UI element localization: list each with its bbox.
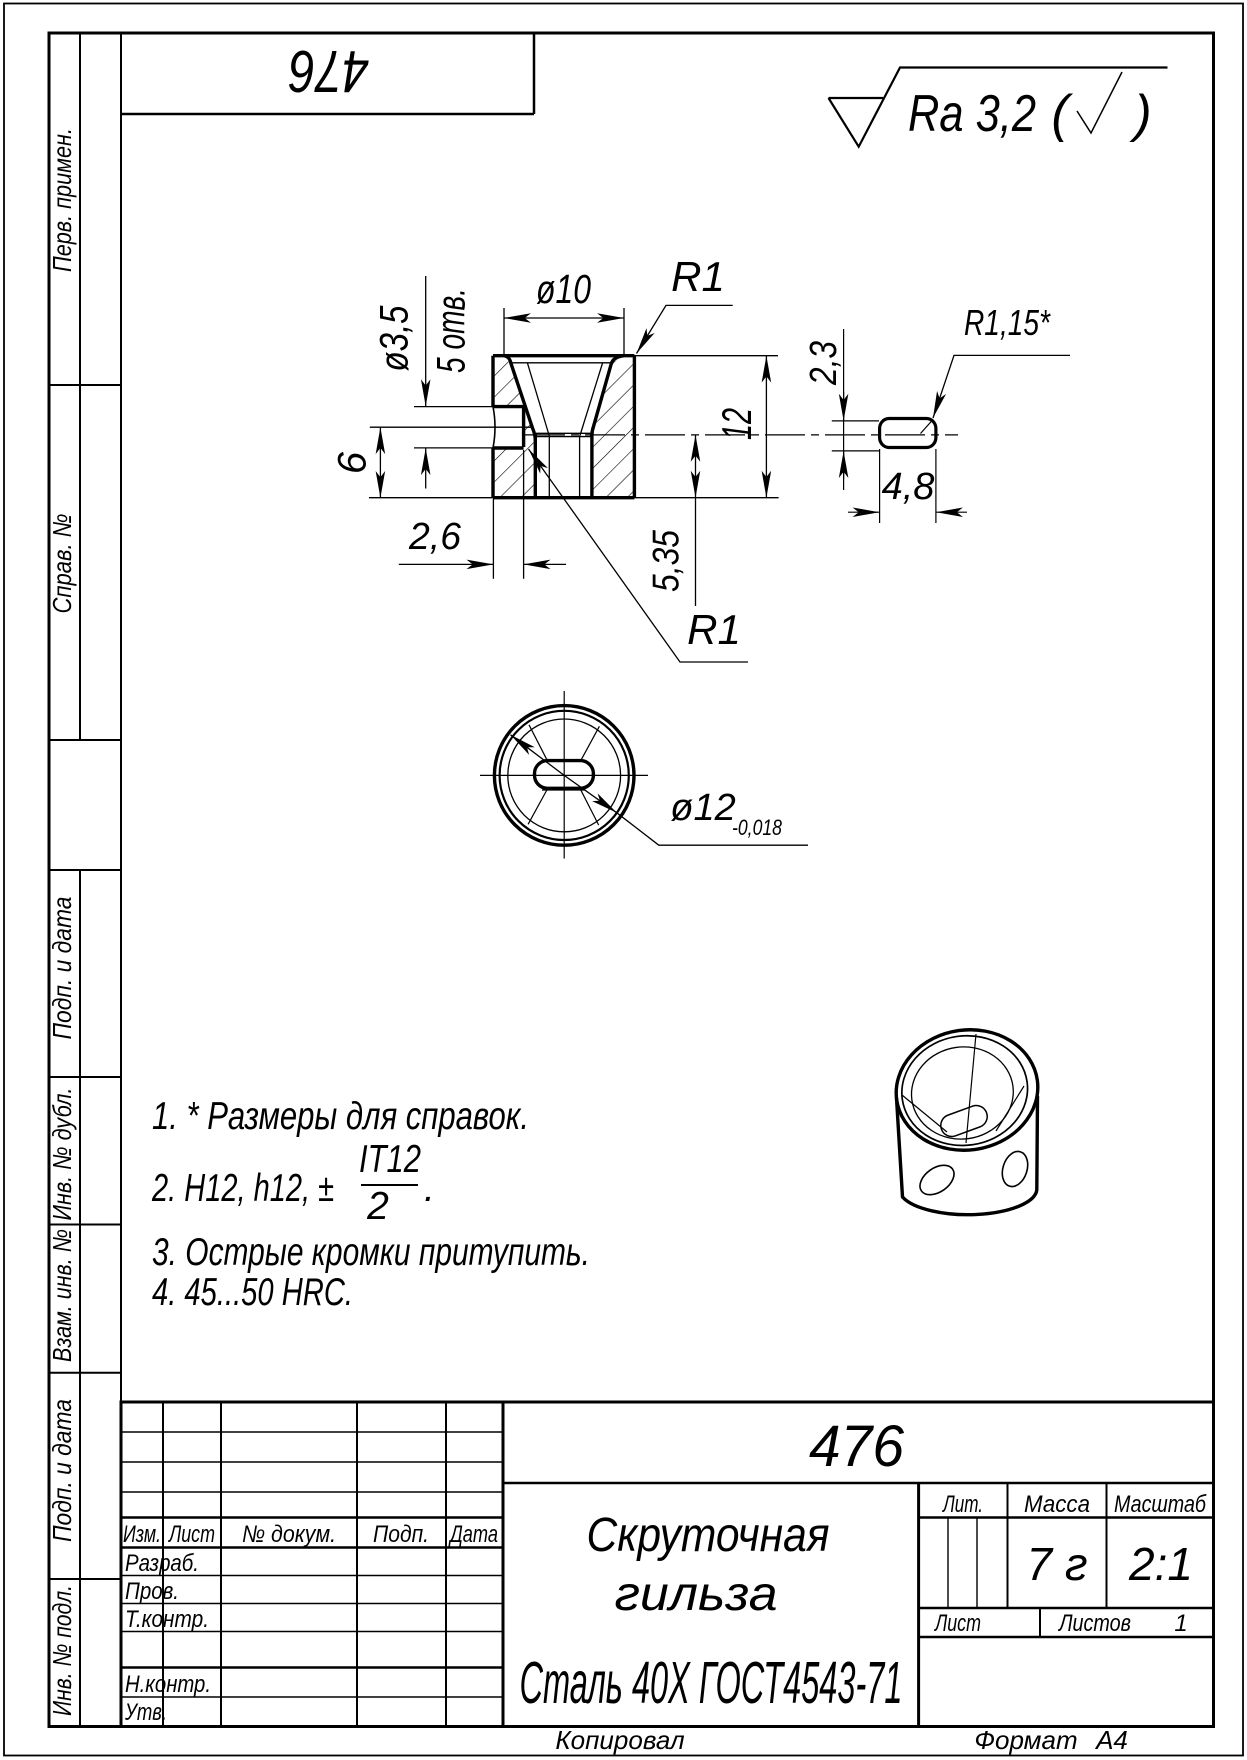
svg-text:Перв. примен.: Перв. примен. — [47, 128, 77, 272]
svg-text:5 отв.: 5 отв. — [430, 288, 474, 373]
svg-text:Лист: Лист — [168, 1521, 215, 1548]
svg-text:R1: R1 — [687, 606, 741, 653]
svg-text:476: 476 — [289, 38, 369, 104]
svg-text:12: 12 — [713, 408, 760, 440]
svg-text:1: 1 — [1174, 1610, 1187, 1637]
svg-text:Подп. и дата: Подп. и дата — [47, 897, 77, 1040]
svg-text:Взам. инв. №: Взам. инв. № — [47, 1229, 77, 1362]
svg-text:Масса: Масса — [1024, 1491, 1090, 1518]
svg-text:№ докум.: № докум. — [242, 1521, 336, 1548]
svg-text:Изм.: Изм. — [123, 1521, 161, 1548]
svg-text:2,6: 2,6 — [408, 516, 462, 558]
svg-text:1. * Размеры для справок.: 1. * Размеры для справок. — [152, 1095, 529, 1138]
svg-text:-0,018: -0,018 — [732, 815, 783, 840]
svg-text:R1,15*: R1,15* — [964, 302, 1051, 343]
svg-text:Разраб.: Разраб. — [125, 1550, 199, 1577]
svg-text:ø10: ø10 — [536, 266, 591, 312]
svg-text:Справ. №: Справ. № — [47, 514, 77, 614]
svg-text:Инв. № дубл.: Инв. № дубл. — [47, 1088, 77, 1221]
svg-text:.: . — [424, 1167, 435, 1210]
svg-text:Лит.: Лит. — [942, 1491, 983, 1518]
svg-text:3. Острые кромки притупить.: 3. Острые кромки притупить. — [152, 1231, 590, 1274]
svg-text:Сталь 40Х ГОСТ4543-71: Сталь 40Х ГОСТ4543-71 — [520, 1650, 903, 1716]
svg-text:Ra 3,2: Ra 3,2 — [908, 85, 1036, 143]
svg-text:2,3: 2,3 — [803, 341, 845, 386]
svg-text:6: 6 — [331, 451, 375, 474]
svg-text:2: 2 — [366, 1185, 389, 1228]
svg-text:Листов: Листов — [1057, 1610, 1131, 1637]
svg-text:2. H12, h12, ±: 2. H12, h12, ± — [151, 1167, 334, 1210]
svg-text:5,35: 5,35 — [646, 530, 687, 592]
svg-text:Копировал: Копировал — [555, 1725, 685, 1755]
svg-text:гильза: гильза — [615, 1568, 778, 1621]
svg-text:Формат: Формат — [974, 1725, 1077, 1755]
svg-text:Т.контр.: Т.контр. — [125, 1606, 209, 1633]
svg-text:IT12: IT12 — [359, 1138, 421, 1181]
svg-text:ø3,5: ø3,5 — [373, 305, 417, 372]
svg-text:7 г: 7 г — [1026, 1538, 1087, 1590]
svg-text:Подп.: Подп. — [373, 1521, 429, 1548]
svg-text:Утв.: Утв. — [124, 1699, 167, 1726]
svg-text:R1: R1 — [671, 253, 725, 300]
svg-text:Дата: Дата — [448, 1521, 498, 1548]
svg-text:Н.контр.: Н.контр. — [125, 1671, 211, 1698]
svg-text:А4: А4 — [1094, 1725, 1128, 1755]
svg-text:Лист: Лист — [934, 1610, 981, 1637]
svg-text:Пров.: Пров. — [125, 1578, 179, 1605]
svg-text:Масштаб: Масштаб — [1114, 1491, 1207, 1518]
svg-text:476: 476 — [809, 1414, 905, 1479]
svg-text:Подп. и дата: Подп. и дата — [47, 1399, 77, 1542]
svg-text:2:1: 2:1 — [1128, 1538, 1193, 1590]
svg-text:Инв. № подл.: Инв. № подл. — [47, 1585, 77, 1716]
svg-text:ø12: ø12 — [670, 787, 735, 829]
svg-text:Скруточная: Скруточная — [587, 1509, 830, 1562]
svg-text:4. 45...50 HRC.: 4. 45...50 HRC. — [152, 1271, 353, 1314]
svg-text:4,8: 4,8 — [882, 466, 935, 508]
